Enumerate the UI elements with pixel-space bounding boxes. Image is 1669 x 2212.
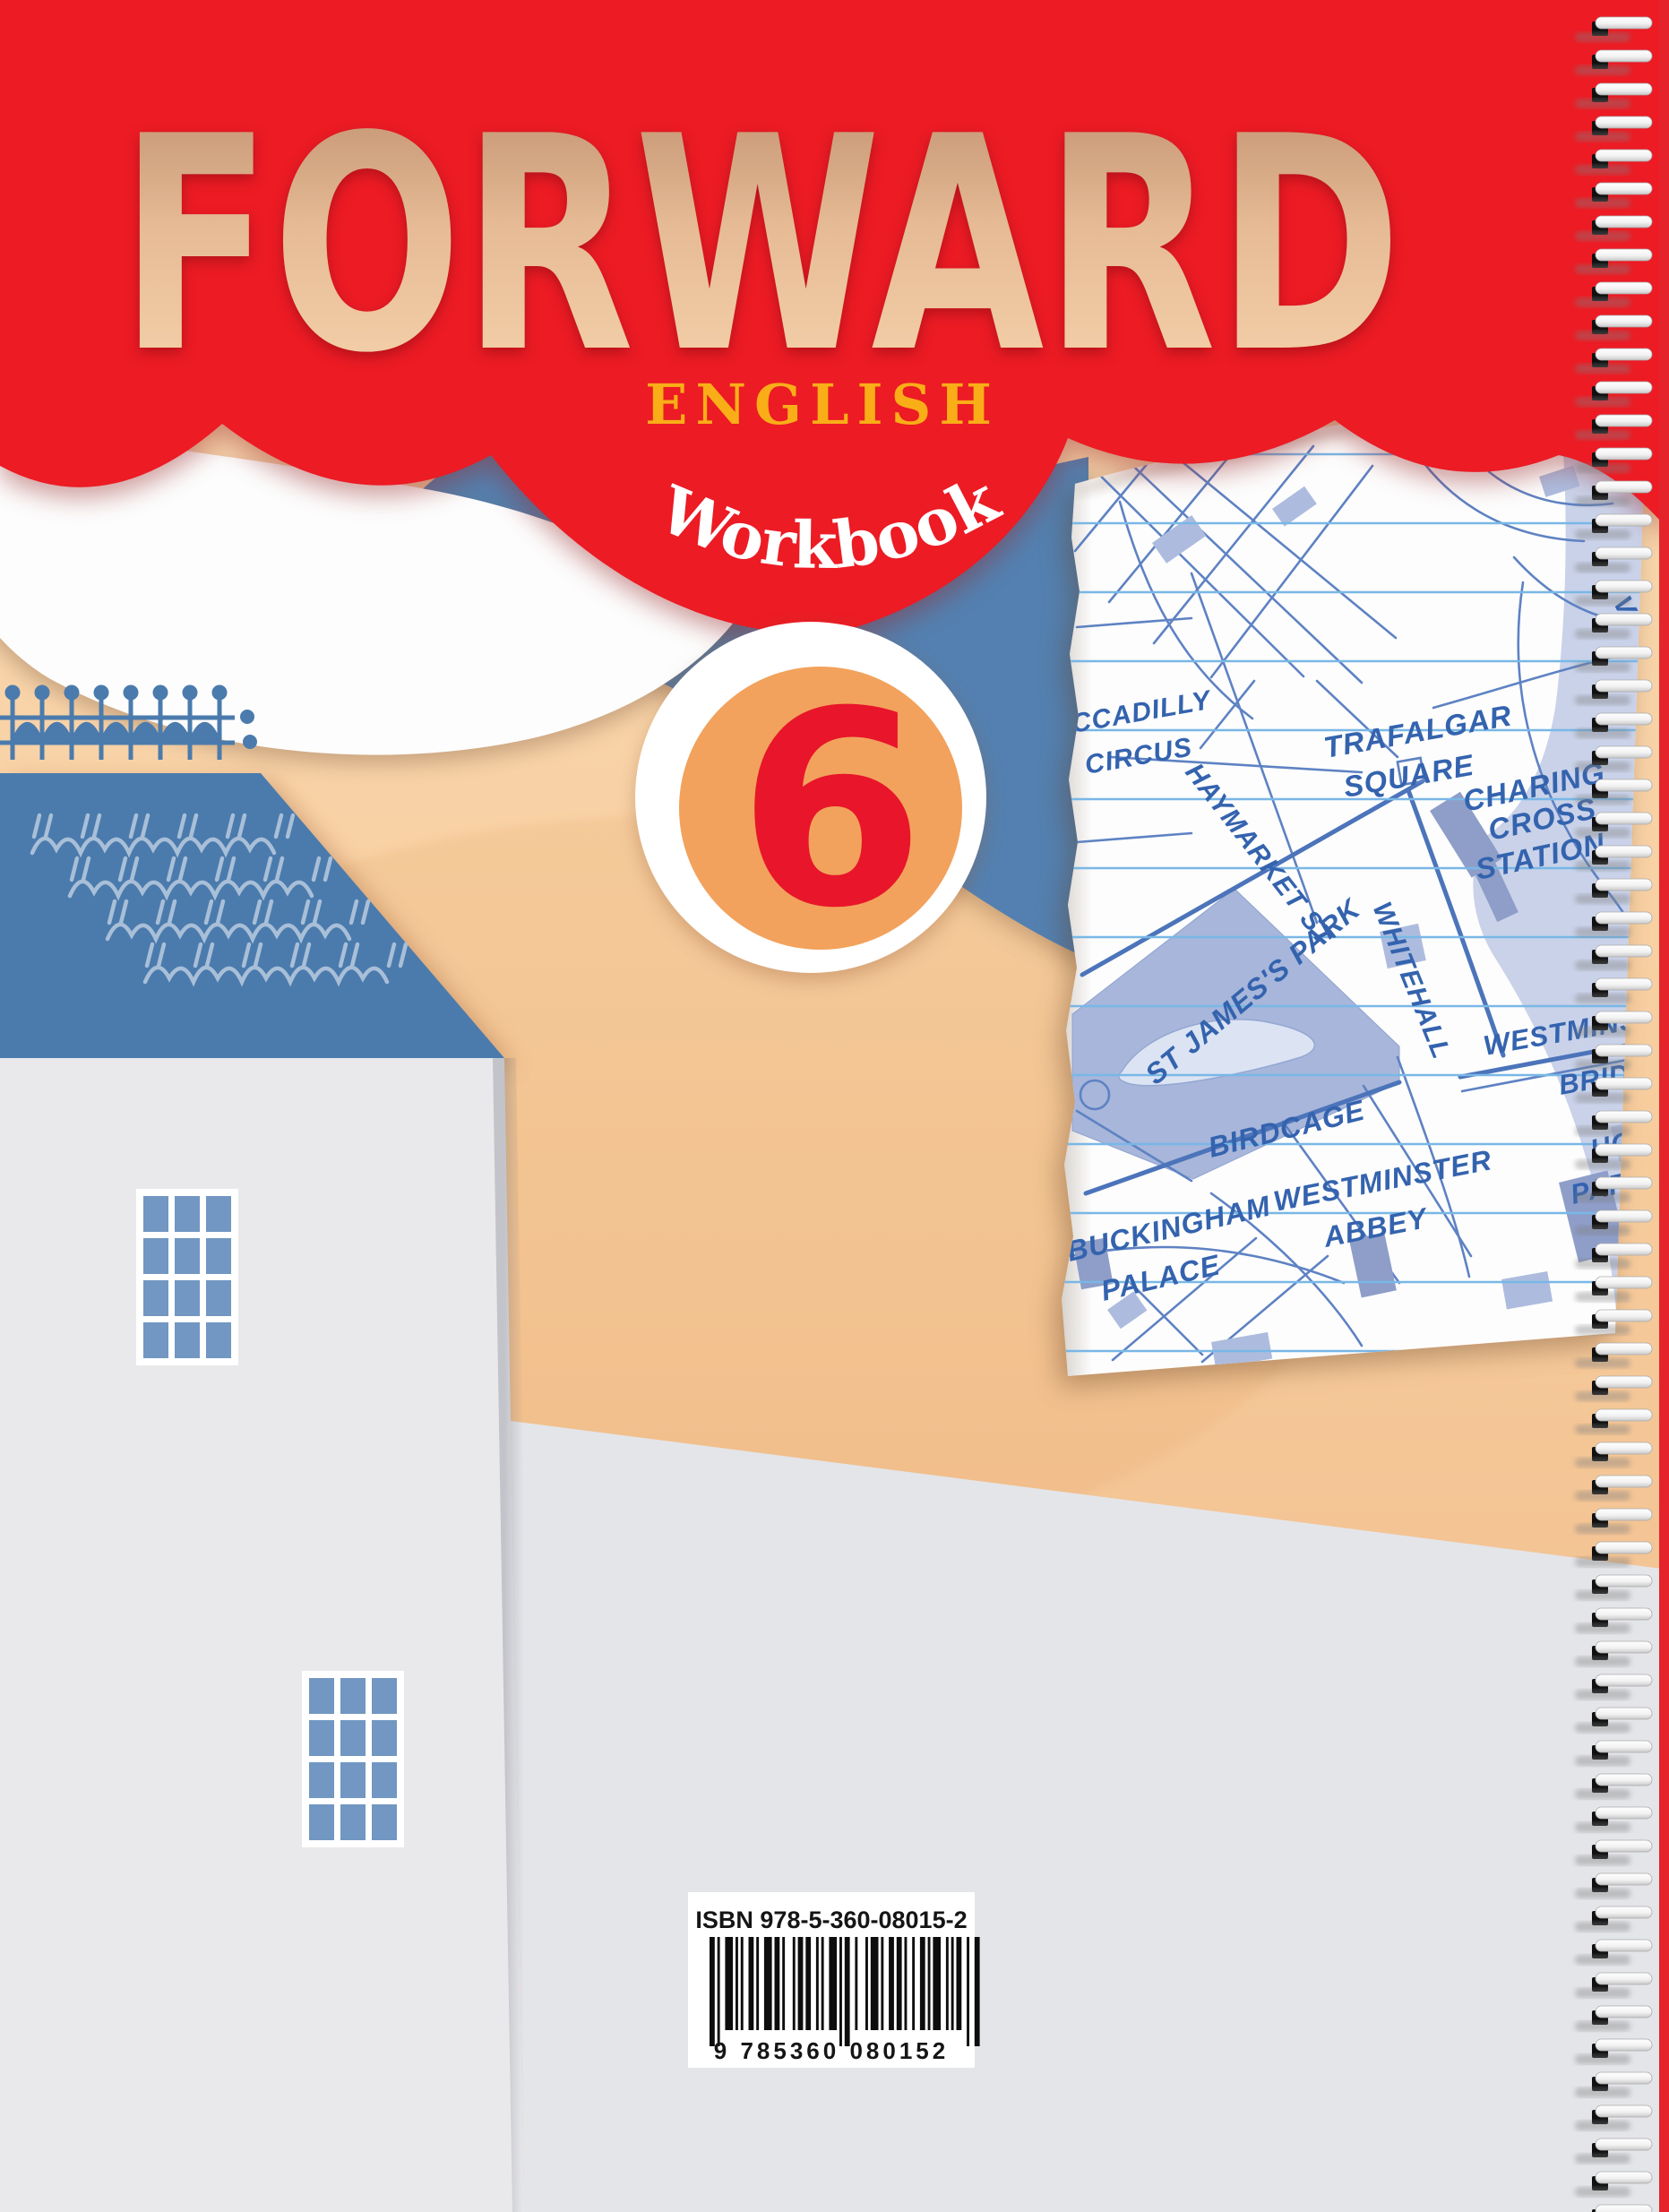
wall-side <box>0 1058 524 2212</box>
barcode-digits: 9 785360 080152 <box>714 2037 949 2064</box>
barcode-panel: ISBN 978-5-360-08015-2 9 785360 080152 <box>688 1892 980 2068</box>
roof-fence <box>0 685 257 760</box>
book-cover: CCADILLY CIRCUS TRAFALGAR SQUARE CHARING… <box>0 0 1669 2212</box>
barcode-bars <box>710 1937 980 2046</box>
isbn-label: ISBN 978-5-360-08015-2 <box>695 1906 967 1933</box>
level-number: 6 <box>738 654 925 967</box>
level-badge: 6 <box>635 622 986 973</box>
page-edge-strip <box>1659 0 1669 2212</box>
cover-art: CCADILLY CIRCUS TRAFALGAR SQUARE CHARING… <box>0 0 1669 2212</box>
page-title: FORWARD <box>119 73 1402 417</box>
subject-label: ENGLISH <box>645 372 1000 437</box>
wall-front <box>511 1421 1669 2212</box>
